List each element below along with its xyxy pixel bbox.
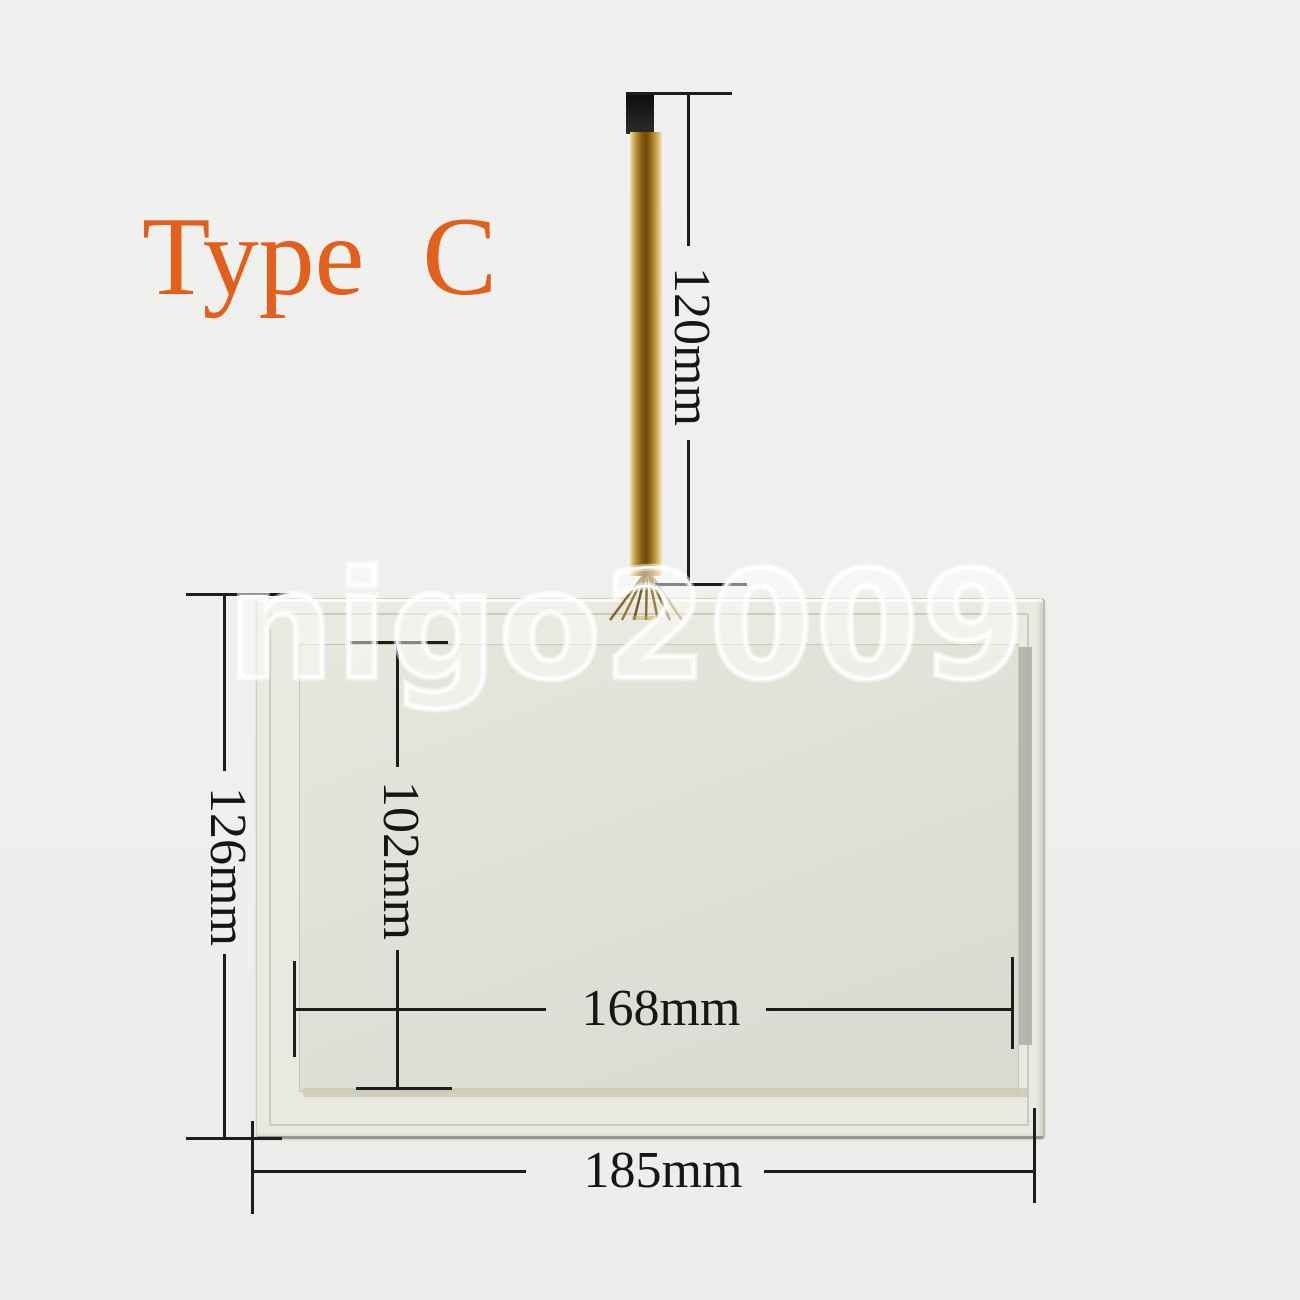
dimension-line bbox=[766, 1008, 1013, 1011]
dimension-tick bbox=[251, 1121, 254, 1214]
dimension-tick bbox=[186, 1137, 282, 1140]
dimension-label-126mm: 126mm bbox=[195, 778, 253, 954]
dimension-line bbox=[687, 440, 690, 586]
dimension-line bbox=[687, 94, 690, 246]
dimension-label-168mm: 168mm bbox=[566, 983, 756, 1035]
dimension-tick bbox=[356, 1087, 452, 1090]
type-label-variant: C bbox=[422, 195, 497, 319]
type-label: TypeC bbox=[142, 196, 497, 319]
dimension-line bbox=[296, 1008, 546, 1011]
dimension-line bbox=[764, 1170, 1035, 1173]
cable-fanout-wires bbox=[598, 570, 698, 624]
dimension-tick bbox=[1011, 957, 1014, 1049]
dimension-line bbox=[223, 954, 226, 1140]
dimension-label-120mm: 120mm bbox=[659, 256, 717, 436]
product-photo: TypeC 120mm 126mm 102m bbox=[0, 0, 1300, 1300]
dimension-label-185mm: 185mm bbox=[568, 1145, 758, 1197]
flex-cable bbox=[630, 132, 662, 576]
dimension-line bbox=[396, 643, 399, 767]
dimension-line bbox=[254, 1170, 526, 1173]
dimension-line bbox=[626, 92, 732, 95]
dimension-tick bbox=[186, 593, 290, 596]
panel-right-bevel bbox=[1019, 647, 1032, 1045]
dimension-tick bbox=[655, 583, 747, 586]
dimension-line bbox=[223, 595, 226, 771]
dimension-label-102mm: 102mm bbox=[368, 772, 426, 948]
type-label-prefix: Type bbox=[142, 195, 364, 319]
cable-connector-tip bbox=[626, 92, 654, 134]
dimension-tick bbox=[1033, 1108, 1036, 1203]
dimension-line bbox=[396, 950, 399, 1090]
